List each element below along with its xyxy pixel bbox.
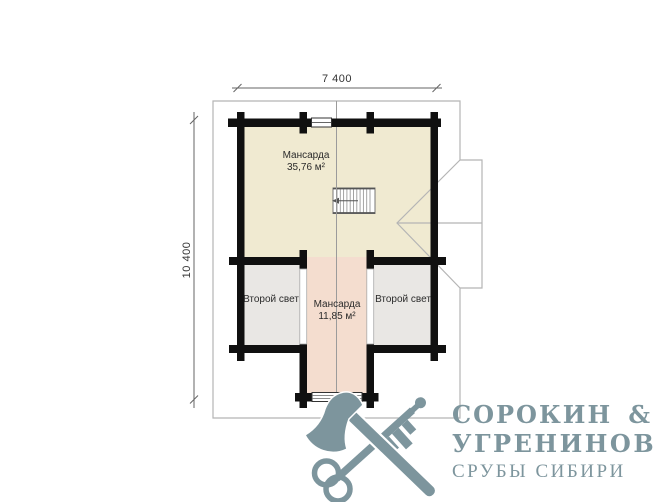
room-label-attic: Мансарда 35,76 м² [256,150,356,174]
room-label-second-light-right: Второй свет [373,294,433,306]
wall-bottom-right [367,345,447,353]
wall-mid-right [367,257,447,265]
window-bottom [312,393,362,402]
room-name: Мансарда [256,150,356,162]
room-name: Второй свет [373,294,433,306]
wall-top-post-left [300,112,308,134]
wall-right [431,112,439,361]
room-name: Мансарда [287,299,387,311]
room-area: 11,85 м² [287,311,387,323]
wall-bottom-left [229,345,307,353]
wall-top-post-right [367,112,375,134]
dimension-top-label: 7 400 [300,73,374,85]
staircase [332,188,375,214]
wall-mid-left [229,257,307,265]
room-label-corridor: Мансарда 11,85 м² [287,299,387,323]
wall-left [237,112,245,361]
room-area: 35,76 м² [256,162,356,174]
wall-top [228,119,441,128]
dimension-left-label: 10 400 [181,230,193,290]
page-canvas: 7 400 10 400 Мансарда 35,76 м² Второй св… [0,0,669,502]
